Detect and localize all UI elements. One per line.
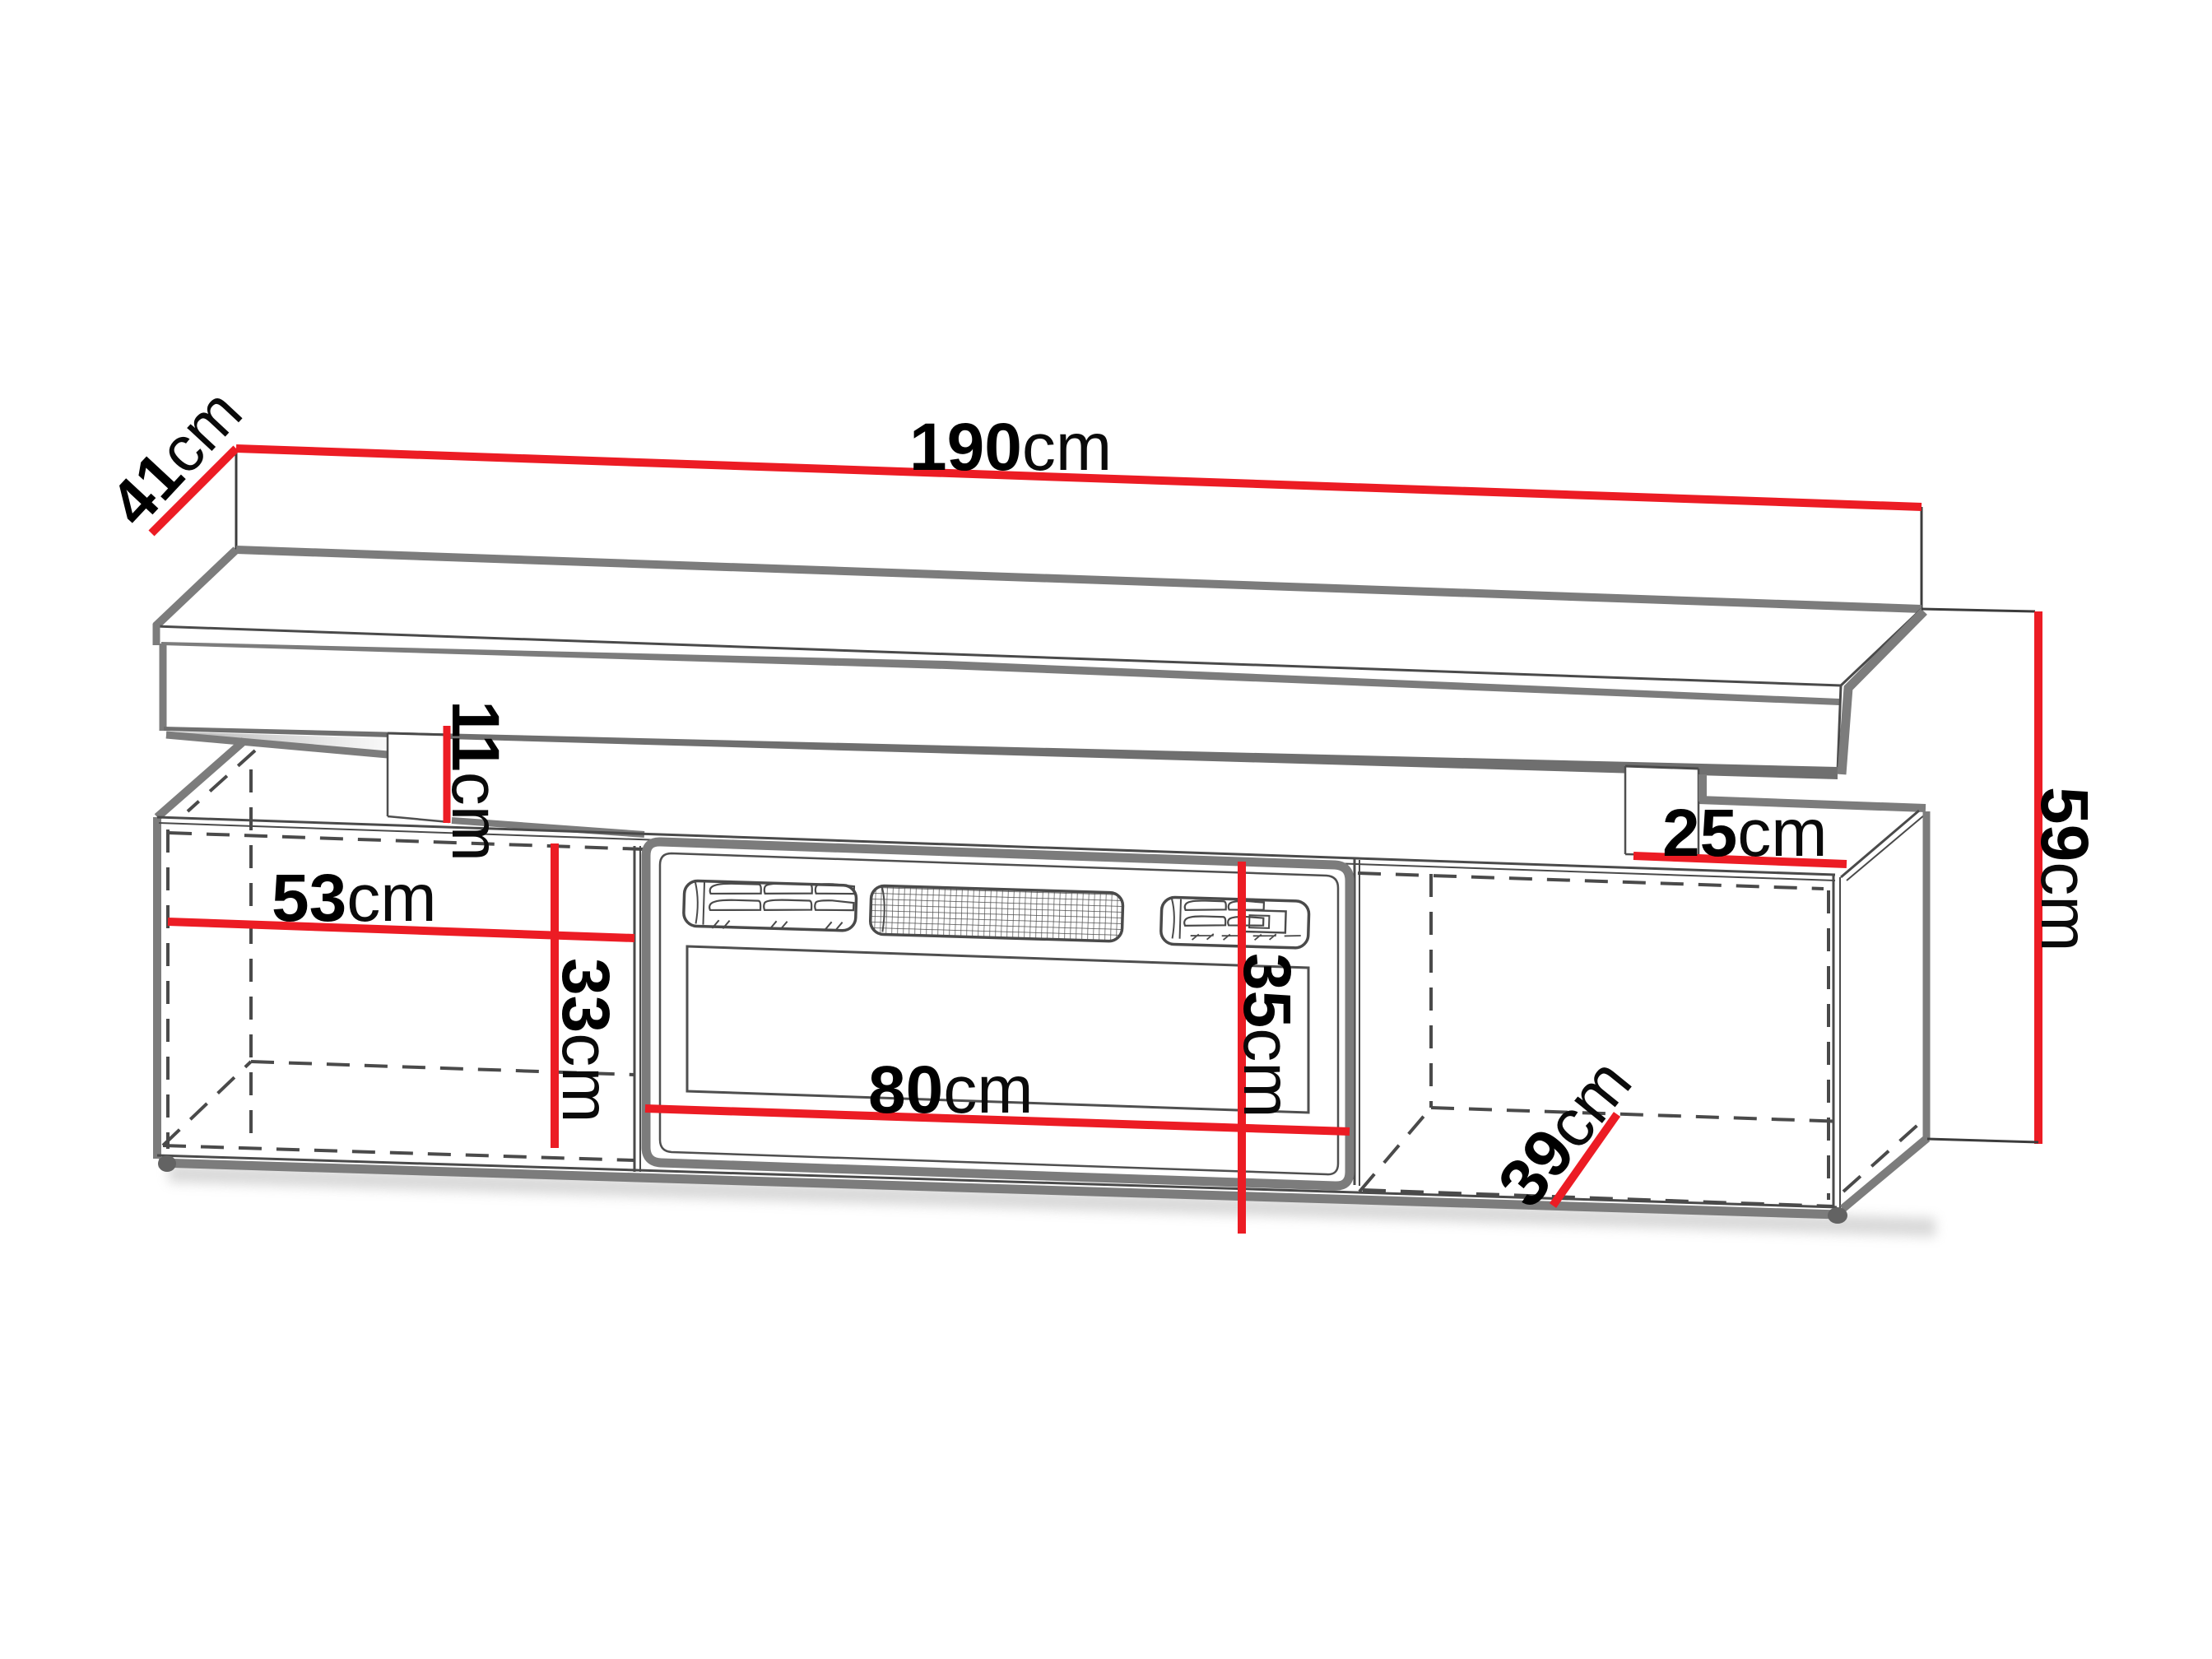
svg-text:190cm: 190cm bbox=[909, 410, 1112, 485]
svg-text:80cm: 80cm bbox=[868, 1053, 1034, 1127]
svg-text:25cm: 25cm bbox=[1662, 796, 1828, 871]
svg-text:35cm: 35cm bbox=[1229, 953, 1304, 1118]
svg-text:11cm: 11cm bbox=[438, 700, 513, 862]
svg-text:33cm: 33cm bbox=[548, 958, 623, 1123]
svg-text:53cm: 53cm bbox=[272, 861, 437, 936]
svg-text:59cm: 59cm bbox=[2027, 787, 2102, 952]
